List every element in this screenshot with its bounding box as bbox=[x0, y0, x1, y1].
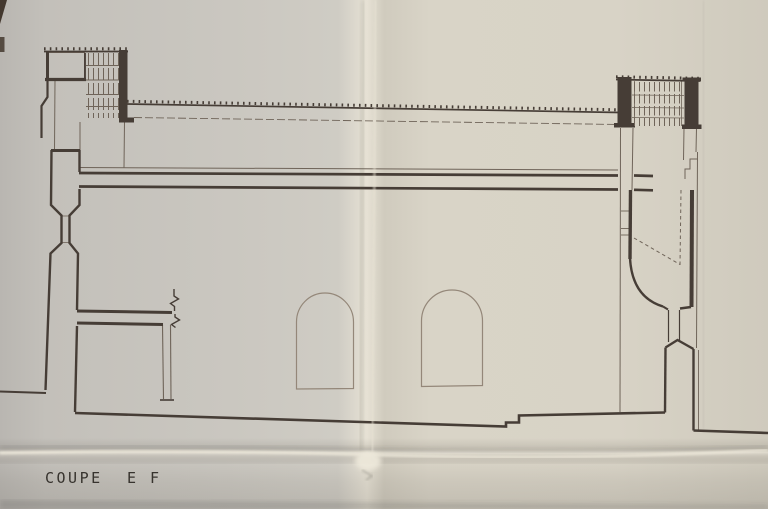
section-title: COUPE E F bbox=[45, 469, 162, 487]
crumple-highlight bbox=[355, 452, 381, 470]
timber-hatch-panel-right bbox=[632, 81, 684, 126]
left-tower-right-wall bbox=[119, 50, 128, 121]
photo-edge-mark bbox=[0, 37, 5, 52]
tower-wall-cut bbox=[630, 190, 631, 259]
tower-wall-cut bbox=[692, 190, 693, 307]
section-drawing-canvas: COUPE E F bbox=[0, 0, 768, 509]
right-tower-left-pillar bbox=[618, 77, 632, 126]
section-title-word: COUPE bbox=[45, 469, 103, 487]
timber-hatch-panel-left bbox=[86, 52, 120, 118]
right-tower-right-pillar bbox=[685, 78, 699, 128]
section-title-word: E F bbox=[127, 469, 162, 487]
architectural-section-photo: COUPE E F bbox=[0, 0, 768, 509]
